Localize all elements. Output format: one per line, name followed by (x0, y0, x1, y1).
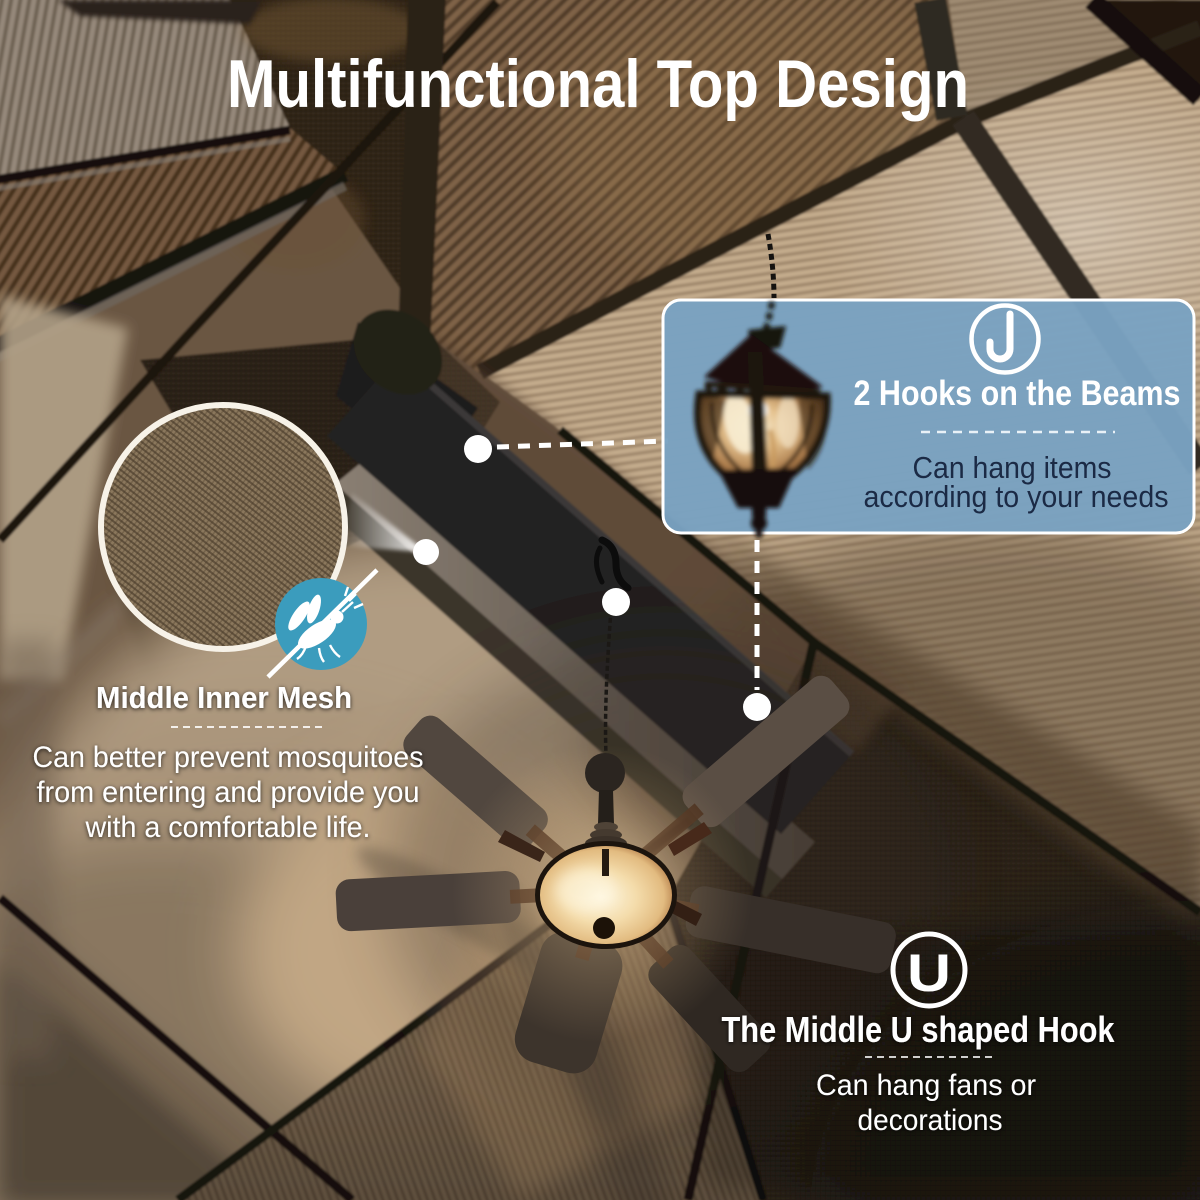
svg-text:Can hang fans or: Can hang fans or (816, 1069, 1036, 1102)
svg-text:U: U (907, 944, 951, 1003)
svg-text:Can better prevent mosquitoes: Can better prevent mosquitoes (33, 741, 424, 774)
svg-text:Middle Inner Mesh: Middle Inner Mesh (96, 680, 352, 715)
svg-text:decorations: decorations (858, 1104, 1003, 1137)
svg-text:Multifunctional Top Design: Multifunctional Top Design (227, 46, 969, 122)
svg-text:2 Hooks on the Beams: 2 Hooks on the Beams (854, 374, 1181, 413)
svg-text:from entering and provide you: from entering and provide you (37, 776, 420, 809)
svg-text:according to your needs: according to your needs (864, 479, 1169, 514)
svg-text:The Middle U shaped Hook: The Middle U shaped Hook (722, 1009, 1116, 1050)
svg-text:with a comfortable life.: with a comfortable life. (85, 811, 371, 844)
